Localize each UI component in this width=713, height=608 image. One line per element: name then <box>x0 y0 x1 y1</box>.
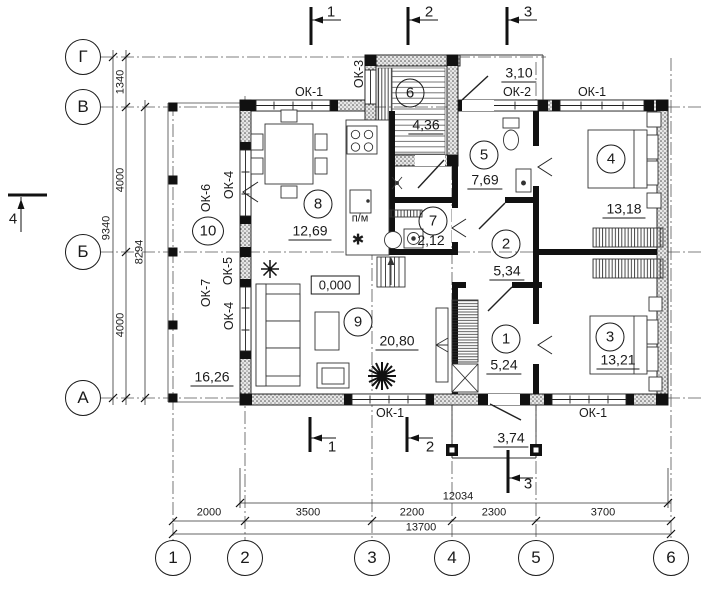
section-2-top-label: 2 <box>425 5 433 20</box>
axis-col-5: 5 <box>518 540 554 576</box>
room-6-badge: 6 <box>396 79 425 108</box>
dim-3700: 3700 <box>591 508 615 519</box>
room-5-number: 5 <box>480 147 488 164</box>
axis-row-v-label: В <box>77 97 88 117</box>
tv-unit <box>436 308 448 382</box>
room-8-badge: 8 <box>304 190 333 219</box>
room-3-area: 13,21 <box>596 353 639 370</box>
axis-col-6: 6 <box>653 540 689 576</box>
room-4-number: 4 <box>607 151 615 168</box>
room-9-number: 9 <box>354 314 362 331</box>
dining-table <box>251 110 327 198</box>
coffee-table <box>315 312 339 350</box>
dim-13700: 13700 <box>406 523 437 534</box>
window-label-ok1-bottomleft: ОК-1 <box>376 407 404 420</box>
room-9-badge: 9 <box>344 308 373 337</box>
laundry-sink <box>385 232 402 249</box>
window-label-ok4-upper: ОК-4 <box>223 171 236 199</box>
room-5-badge: 5 <box>470 141 499 170</box>
section-3-top-label: 3 <box>524 5 532 20</box>
room-8-area: 12,69 <box>288 224 331 241</box>
room-2-badge: 2 <box>492 230 521 259</box>
room-3-number: 3 <box>606 329 614 346</box>
axis-col-3: 3 <box>354 540 390 576</box>
dim-4000-upper: 4000 <box>116 168 127 192</box>
dim-9340: 9340 <box>102 216 113 240</box>
axis-col-5-label: 5 <box>531 548 540 568</box>
room-6-area: 4,36 <box>408 118 443 135</box>
dim-2200: 2200 <box>400 508 424 519</box>
room-8-number: 8 <box>314 196 322 213</box>
axis-row-v: В <box>65 89 101 125</box>
dim-2000: 2000 <box>197 508 221 519</box>
window-label-ok1-bottomright: ОК-1 <box>579 407 607 420</box>
section-4-left-label: 4 <box>9 212 17 227</box>
room-7-number: 7 <box>429 213 437 230</box>
wardrobe-room4 <box>593 228 663 247</box>
section-3-bottom-label: 3 <box>524 477 532 492</box>
room-4-badge: 4 <box>597 145 626 174</box>
bathroom-sink <box>516 169 531 192</box>
room-4-area: 13,18 <box>602 202 645 219</box>
window-label-ok5: ОК-5 <box>222 257 235 285</box>
window-ok2 <box>492 100 538 111</box>
dim-porch-top: 3,10 <box>501 66 536 83</box>
window-ok3-sauna <box>365 70 376 104</box>
room-7-area: 2,12 <box>417 233 444 247</box>
room-2-number: 2 <box>502 236 510 253</box>
axis-row-a-label: А <box>77 388 88 408</box>
wardrobe-room3 <box>593 259 663 278</box>
level-mark: 0,000 <box>311 276 360 295</box>
room-10-badge: 10 <box>192 217 224 246</box>
room-9-area: 20,80 <box>375 334 418 351</box>
room-5-area: 7,69 <box>467 173 502 190</box>
room-1-number: 1 <box>502 331 510 348</box>
window-label-ok7: ОК-7 <box>200 279 213 307</box>
section-1-bottom-label: 1 <box>328 440 336 455</box>
radiator <box>390 210 422 217</box>
room-1-badge: 1 <box>492 325 521 354</box>
dim-porch-bottom: 3,74 <box>493 431 528 448</box>
window-label-ok1-topright: ОК-1 <box>578 86 606 99</box>
axis-col-3-label: 3 <box>367 548 376 568</box>
axis-row-g: Г <box>65 39 101 75</box>
axis-col-2-label: 2 <box>240 548 249 568</box>
section-1-top-label: 1 <box>327 5 335 20</box>
axis-col-1-label: 1 <box>168 548 177 568</box>
window-left-lower <box>240 287 251 351</box>
toilet <box>503 118 519 150</box>
plant-large <box>368 362 396 390</box>
sofa <box>256 284 300 386</box>
sink-mark: ✱ <box>352 233 365 248</box>
window-ok1-living <box>352 394 426 405</box>
axis-row-b: Б <box>65 234 101 270</box>
armchair <box>317 363 349 388</box>
floor-plan: Г В Б А 1 2 3 4 5 6 1 2 3 4 5 6 7 8 9 10… <box>0 0 713 608</box>
window-ok1-bedroom3 <box>552 394 626 405</box>
axis-col-4-label: 4 <box>447 548 456 568</box>
axis-col-1: 1 <box>155 540 191 576</box>
room-2-area: 5,34 <box>489 264 524 281</box>
axis-col-2: 2 <box>227 540 263 576</box>
axis-row-g-label: Г <box>78 47 87 67</box>
window-label-ok1-topleft: ОК-1 <box>295 86 323 99</box>
axis-col-4: 4 <box>434 540 470 576</box>
plant-small <box>261 260 279 278</box>
section-2-bottom-label: 2 <box>426 440 434 455</box>
dishwasher-label: п/м <box>352 214 369 225</box>
window-label-ok2: ОК-2 <box>503 86 531 99</box>
window-label-ok6: ОК-6 <box>200 184 213 212</box>
dim-12034: 12034 <box>443 492 474 503</box>
window-label-ok3: ОК-3 <box>353 60 366 88</box>
window-ok1-kitchen <box>256 100 330 111</box>
window-ok1-bedroom4 <box>560 100 644 111</box>
room-1-area: 5,24 <box>486 358 521 375</box>
window-label-ok4-lower: ОК-4 <box>223 302 236 330</box>
terrace-outline <box>168 103 240 402</box>
dim-3500: 3500 <box>296 508 320 519</box>
dim-8294: 8294 <box>135 240 146 264</box>
window-left-upper <box>240 150 251 216</box>
shoe-cabinet <box>452 364 478 392</box>
dim-4000-lower: 4000 <box>116 313 127 337</box>
wardrobe-room1 <box>452 300 478 362</box>
axis-col-6-label: 6 <box>666 548 675 568</box>
dim-2300: 2300 <box>482 508 506 519</box>
room-6-number: 6 <box>406 85 414 102</box>
axis-row-a: А <box>65 380 101 416</box>
room-10-number: 10 <box>200 223 217 240</box>
axis-row-b-label: Б <box>77 242 88 262</box>
room-10-area: 16,26 <box>190 370 233 387</box>
room-3-badge: 3 <box>596 323 625 352</box>
dim-1340: 1340 <box>116 70 127 94</box>
